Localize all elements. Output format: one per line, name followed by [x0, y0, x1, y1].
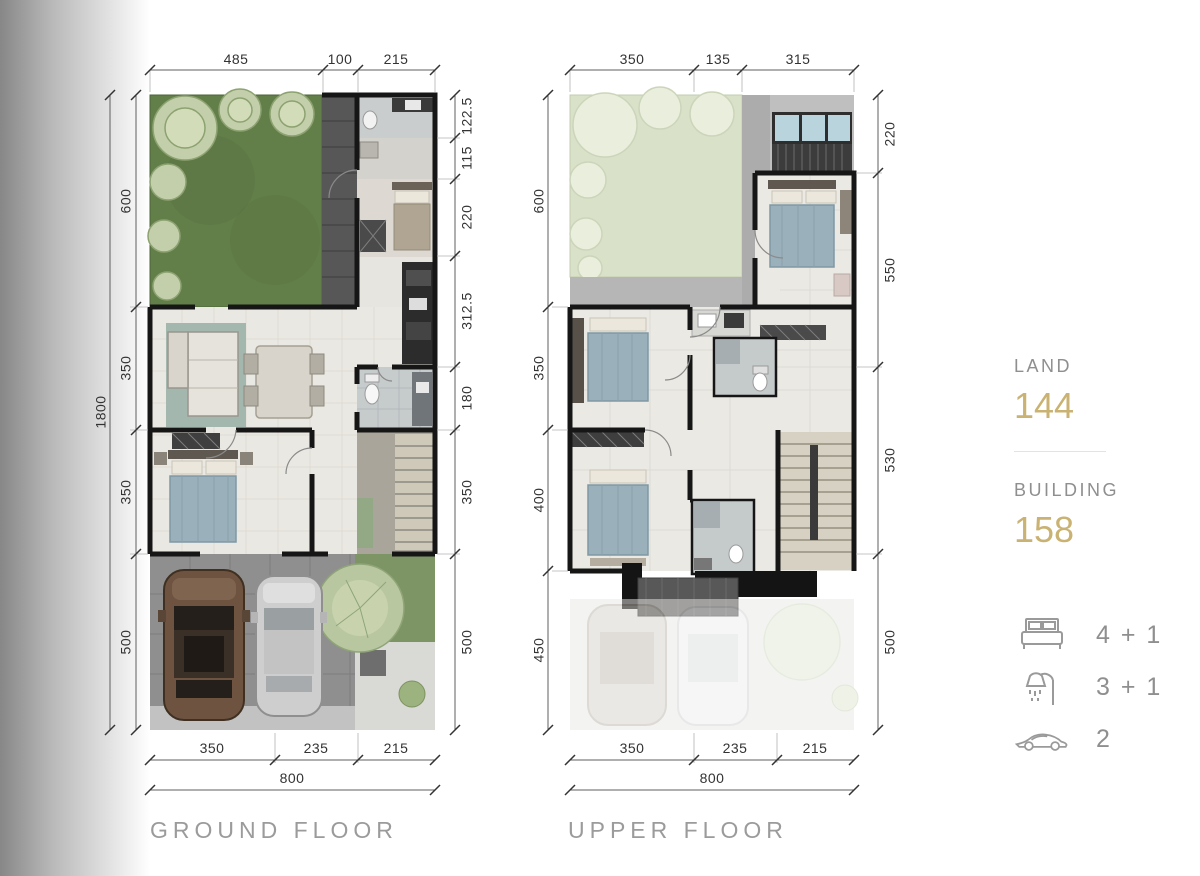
bedrooms-value: 4 + 1	[1096, 621, 1162, 650]
dim-label: 500	[118, 630, 134, 655]
dim-label: 350	[620, 51, 645, 67]
legend-divider	[1014, 451, 1106, 452]
dim-label: 215	[803, 740, 828, 756]
upper-floor-title: UPPER FLOOR	[568, 817, 788, 844]
dim-label: 100	[328, 51, 353, 67]
dim-label: 600	[531, 189, 547, 214]
dim-label: 220	[459, 205, 475, 230]
bedrooms-row: 4 + 1	[1014, 609, 1190, 661]
bed-icon	[1014, 615, 1070, 655]
dim-label: 1800	[93, 395, 109, 428]
upper-wardrobe	[572, 432, 644, 447]
ground-floor-plan: 485 100 215 1800 600 350 350 500 122.5 1…	[60, 30, 500, 810]
building-label: BUILDING	[1014, 480, 1190, 501]
car-silver	[251, 576, 327, 716]
dim-label: 530	[882, 448, 898, 473]
dim-label: 220	[882, 122, 898, 147]
car-brown	[158, 570, 250, 720]
dim-label: 180	[459, 386, 475, 411]
upper-bedroom-2	[572, 318, 648, 403]
bathrooms-row: 3 + 1	[1014, 661, 1190, 713]
dim-label: 350	[200, 740, 225, 756]
upper-ghost-carport	[570, 599, 858, 730]
ground-floor-title: GROUND FLOOR	[150, 817, 398, 844]
dim-label: 350	[620, 740, 645, 756]
dim-label: 550	[882, 258, 898, 283]
upper-roof-garden	[570, 87, 742, 280]
land-value: 144	[1014, 385, 1190, 427]
legend-specs: 4 + 1 3 + 1 2	[1014, 609, 1190, 765]
dim-label: 500	[882, 630, 898, 655]
dim-label: 350	[531, 356, 547, 381]
dim-label: 215	[384, 740, 409, 756]
dim-label: 115	[459, 146, 475, 170]
upper-balcony-window	[772, 112, 852, 173]
page: 485 100 215 1800 600 350 350 500 122.5 1…	[0, 0, 1200, 876]
shower-icon	[1014, 665, 1070, 709]
ground-bathroom	[357, 367, 435, 430]
dim-label: 122.5	[459, 97, 475, 135]
dim-label: 235	[304, 740, 329, 756]
dim-label: 312.5	[459, 292, 475, 330]
dim-label: 450	[531, 638, 547, 663]
land-stat: LAND 144	[1014, 356, 1190, 427]
dim-label: 350	[118, 356, 134, 381]
ground-living-room	[166, 323, 246, 427]
dim-label: 350	[459, 480, 475, 505]
upper-bathroom-2	[692, 500, 754, 574]
dim-label: 485	[224, 51, 249, 67]
cars-row: 2	[1014, 713, 1190, 765]
legend-panel: LAND 144 BUILDING 158 4 + 1	[1014, 356, 1190, 765]
land-label: LAND	[1014, 356, 1190, 377]
dim-label: 315	[786, 51, 811, 67]
dim-label: 800	[280, 770, 305, 786]
upper-floor-plan: 350 135 315 600 350 400 450 220 550 530 …	[510, 30, 930, 810]
dim-label: 500	[459, 630, 475, 655]
dim-label: 400	[531, 488, 547, 513]
ground-terrace	[322, 95, 357, 307]
upper-kitchenette	[692, 310, 750, 336]
dim-label: 235	[723, 740, 748, 756]
ground-dining	[244, 346, 324, 418]
cars-value: 2	[1096, 725, 1112, 754]
dim-label: 215	[384, 51, 409, 67]
dim-label: 600	[118, 189, 134, 214]
ground-stairs	[357, 430, 435, 554]
upper-bedroom-3	[588, 470, 648, 566]
upper-stairs	[778, 432, 854, 570]
building-stat: BUILDING 158	[1014, 480, 1190, 551]
building-value: 158	[1014, 509, 1190, 551]
car-icon	[1014, 725, 1070, 753]
dim-label: 800	[700, 770, 725, 786]
upper-bathroom-1	[714, 338, 776, 396]
ground-kitchen	[402, 262, 435, 364]
dim-label: 135	[706, 51, 731, 67]
bathrooms-value: 3 + 1	[1096, 673, 1162, 702]
dim-label: 350	[118, 480, 134, 505]
